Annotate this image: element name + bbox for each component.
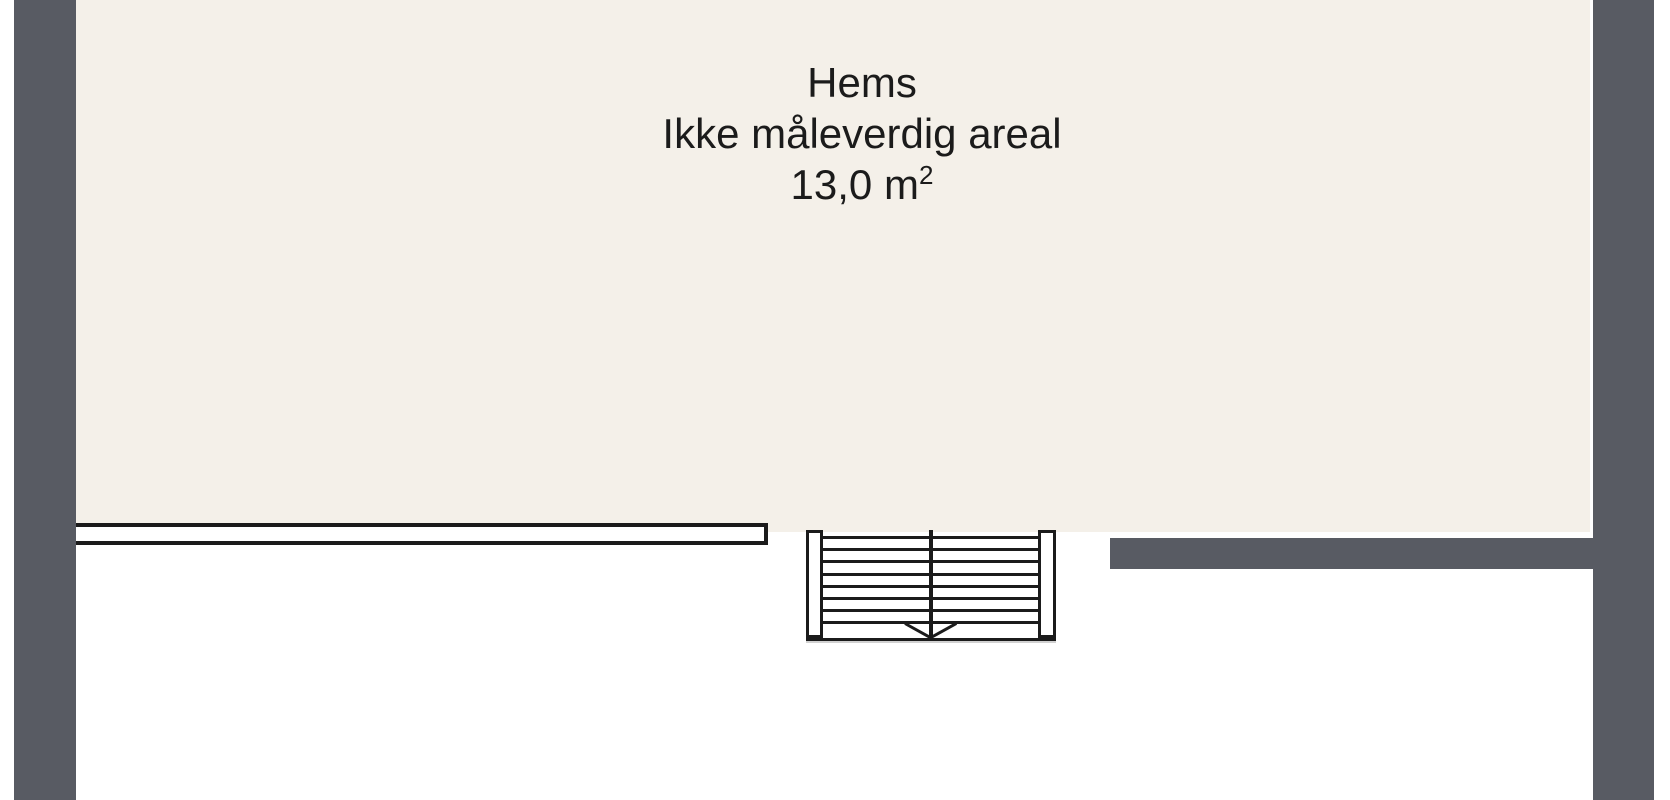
- room-area-label: 13,0 m2: [412, 159, 1312, 210]
- room-area-value: 13,0 m: [791, 161, 919, 208]
- stair-divider: [929, 530, 933, 638]
- room-area-superscript: 2: [919, 160, 933, 190]
- staircase: [806, 530, 1056, 641]
- floorplan-canvas: Hems Ikke måleverdig areal 13,0 m2: [0, 0, 1670, 800]
- room-note-label: Ikke måleverdig areal: [412, 108, 1312, 159]
- stair-stringer-left: [806, 530, 823, 638]
- wall-left: [14, 0, 76, 800]
- loft-railing: [76, 523, 768, 545]
- room-name-label: Hems: [412, 57, 1312, 108]
- half-wall-bar: [1110, 538, 1594, 569]
- wall-right: [1593, 0, 1654, 800]
- stair-stringer-right: [1038, 530, 1056, 638]
- room-label-block: Hems Ikke måleverdig areal 13,0 m2: [412, 57, 1312, 210]
